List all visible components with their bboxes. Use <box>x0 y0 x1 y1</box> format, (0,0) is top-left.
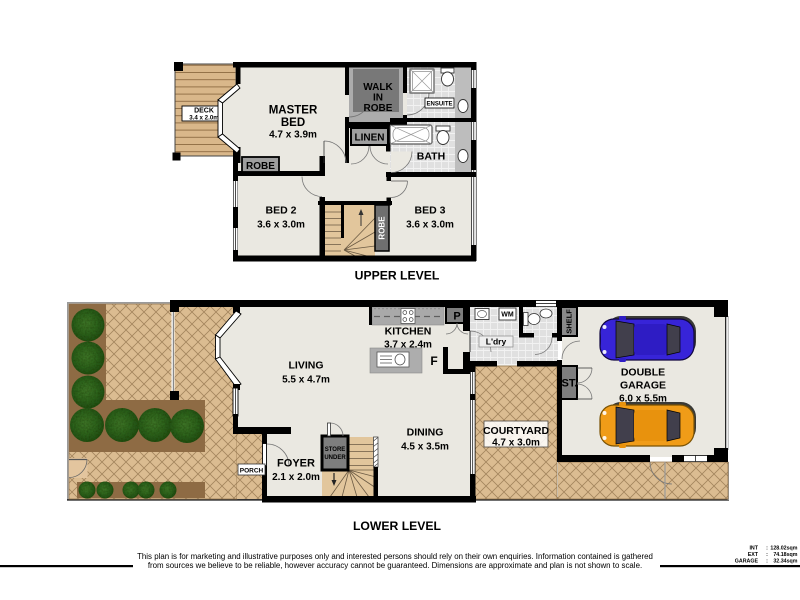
svg-text:P: P <box>453 311 460 323</box>
svg-text:74.18sqm: 74.18sqm <box>773 552 797 558</box>
svg-text:SHELF: SHELF <box>565 309 574 334</box>
svg-text:4.7 x 3.9m: 4.7 x 3.9m <box>269 130 317 141</box>
svg-text:WALK: WALK <box>363 82 393 93</box>
svg-text:3.4 x 2.0m: 3.4 x 2.0m <box>189 115 219 122</box>
svg-text:LINEN: LINEN <box>355 133 385 144</box>
svg-text:128.02sqm: 128.02sqm <box>770 546 797 552</box>
svg-text:LIVING: LIVING <box>288 360 323 372</box>
svg-text:6.0 x 5.5m: 6.0 x 5.5m <box>619 394 667 405</box>
svg-text:EXT: EXT <box>748 552 759 558</box>
svg-text:DINING: DINING <box>407 427 444 439</box>
svg-text:GARAGE: GARAGE <box>620 380 666 392</box>
svg-text:5.5 x 4.7m: 5.5 x 4.7m <box>282 375 330 386</box>
svg-text:UPPER LEVEL: UPPER LEVEL <box>355 269 440 283</box>
svg-text:BED 3: BED 3 <box>415 205 446 217</box>
svg-text:L'dry: L'dry <box>486 337 507 347</box>
svg-text:BATH: BATH <box>417 151 445 163</box>
svg-text:4.7 x 3.0m: 4.7 x 3.0m <box>492 438 540 449</box>
svg-text:from sources we believe to be: from sources we believe to be reliable, … <box>148 561 642 570</box>
svg-text:ROBE: ROBE <box>246 161 275 172</box>
svg-text:32.34sqm: 32.34sqm <box>773 559 797 565</box>
svg-text:IN: IN <box>373 93 383 104</box>
svg-text:FOYER: FOYER <box>277 458 315 470</box>
svg-text:UNDER: UNDER <box>324 455 346 461</box>
svg-text::: : <box>766 552 768 558</box>
svg-text::: : <box>766 546 768 552</box>
svg-text:BED 2: BED 2 <box>266 205 297 217</box>
svg-text:2.1 x 2.0m: 2.1 x 2.0m <box>272 472 320 483</box>
svg-text:ROBE: ROBE <box>378 216 387 240</box>
svg-text:PORCH: PORCH <box>240 468 264 475</box>
svg-text:INT: INT <box>749 546 758 552</box>
svg-text:STORE: STORE <box>325 447 346 453</box>
svg-text:ST.: ST. <box>562 378 578 390</box>
svg-text:MASTER: MASTER <box>269 105 318 117</box>
svg-text:3.6 x 3.0m: 3.6 x 3.0m <box>257 220 305 231</box>
svg-text:BED: BED <box>281 117 305 129</box>
svg-text:This plan is for marketing and: This plan is for marketing and illustrat… <box>137 552 653 561</box>
svg-text:KITCHEN: KITCHEN <box>385 326 432 338</box>
svg-text:4.5 x 3.5m: 4.5 x 3.5m <box>401 442 449 453</box>
svg-text:WM: WM <box>501 312 514 319</box>
svg-text:F: F <box>430 354 437 368</box>
svg-text:COURTYARD: COURTYARD <box>483 425 550 437</box>
svg-text:LOWER LEVEL: LOWER LEVEL <box>353 519 442 533</box>
svg-text:3.7 x 2.4m: 3.7 x 2.4m <box>384 340 432 351</box>
svg-text::: : <box>766 559 768 565</box>
svg-text:GARAGE: GARAGE <box>735 559 759 565</box>
svg-text:ROBE: ROBE <box>364 103 393 114</box>
svg-text:ENSUITE: ENSUITE <box>426 101 452 107</box>
svg-text:DECK: DECK <box>194 108 214 115</box>
svg-text:DOUBLE: DOUBLE <box>621 367 665 379</box>
svg-text:3.6 x 3.0m: 3.6 x 3.0m <box>406 220 454 231</box>
